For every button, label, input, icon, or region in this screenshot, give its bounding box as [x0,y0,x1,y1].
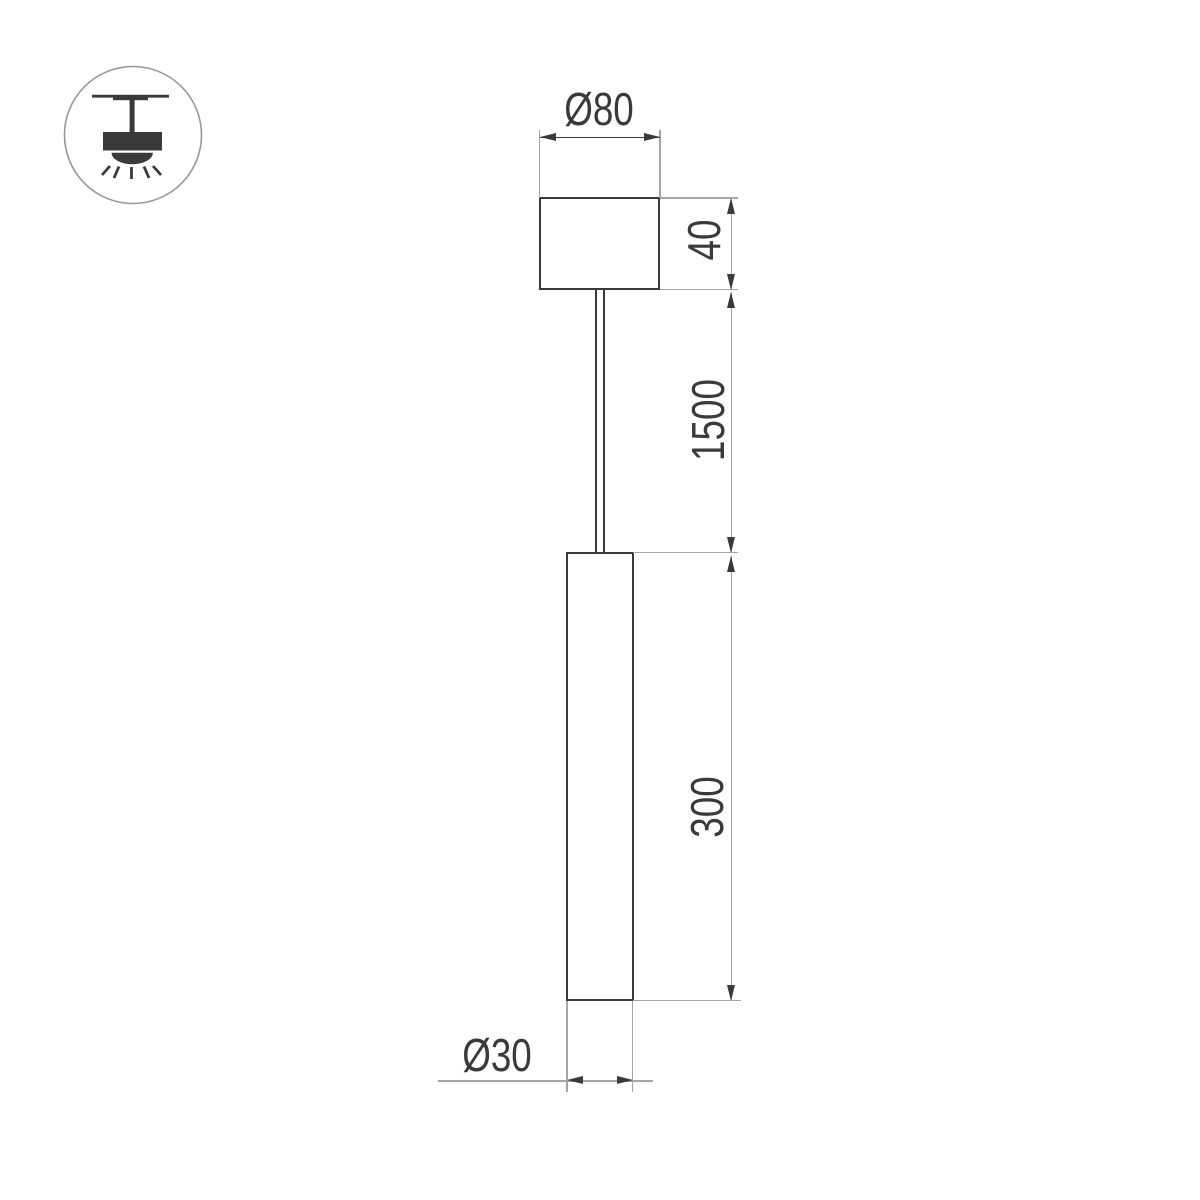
dim-arrow-up-icon [727,292,735,308]
dim-arrow-down-icon [727,985,735,1001]
dim-label-tube-diameter: Ø30 [433,1032,561,1078]
dim-arrow-down-icon [727,537,735,553]
dim-label-canopy-height: 40 [681,216,727,264]
dim-arrow-right-icon [617,1076,633,1084]
dim-arrow-right-icon [644,133,660,141]
technical-drawing-canvas: Ø80 40 1500 300 Ø30 [0,0,1200,1200]
canopy-outline [539,197,660,290]
icon-diffuser-dome [112,153,153,165]
dim-arrow-up-icon [727,556,735,572]
pendant-lamp-icon [63,65,203,205]
icon-lamp-body [103,132,162,151]
dim-line-canopy-diameter [540,137,660,139]
icon-stem [130,98,135,133]
ext-line-tube-top [633,552,738,554]
suspension-wire [595,289,605,553]
dim-label-suspension-length: 1500 [685,364,731,476]
ext-line-tube-bottom [633,1000,741,1002]
dim-arrow-up-icon [727,198,735,214]
dim-label-tube-length: 300 [684,759,730,855]
dim-arrow-down-icon [727,274,735,290]
icon-light-rays [102,166,161,179]
tube-outline [566,552,634,1001]
dim-arrow-left-icon [567,1076,583,1084]
dim-label-canopy-diameter: Ø80 [551,86,647,132]
dim-arrow-left-icon [540,133,556,141]
